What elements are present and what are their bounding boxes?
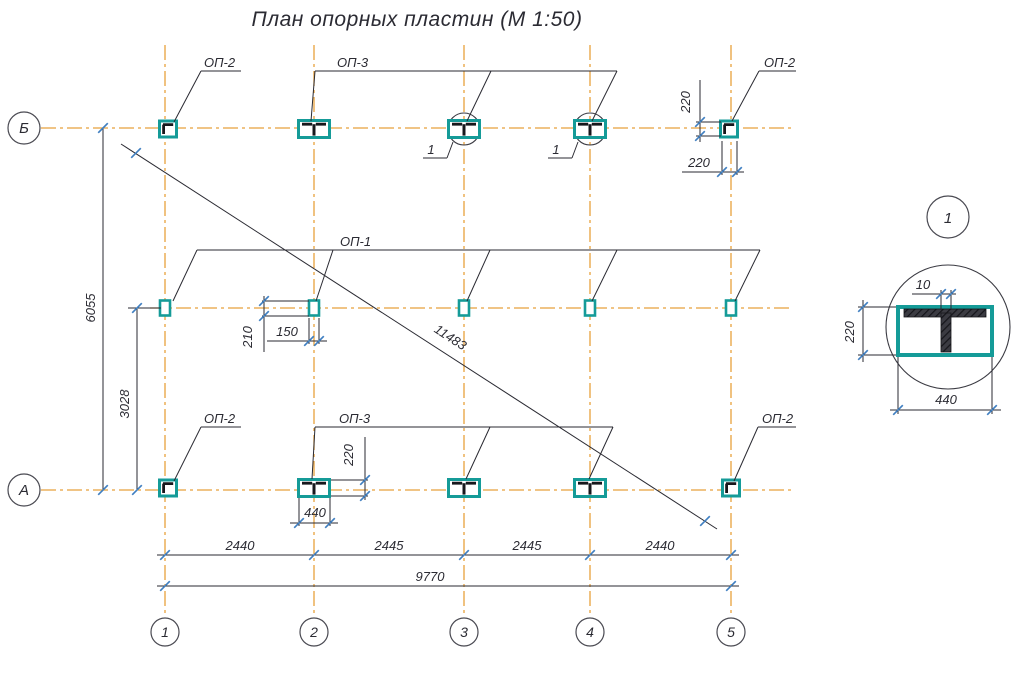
leader-line [467, 250, 490, 301]
diagonal-dimension: 11483 [121, 144, 717, 529]
plate-op3 [449, 480, 480, 497]
axis-label-col-3: 3 [460, 624, 468, 640]
plate-op3 [575, 480, 606, 497]
dim-span-1: 2440 [225, 538, 256, 553]
plate-op1 [309, 301, 319, 316]
detail-view: 1 10 220 440 [842, 196, 1010, 415]
leader-line [572, 142, 578, 158]
axis-label-col-2: 2 [309, 624, 318, 640]
label-op2-bottom-left: ОП-2 [204, 411, 236, 426]
axis-label-col-5: 5 [727, 624, 735, 640]
plate-op1 [585, 301, 595, 316]
plate-op2 [160, 121, 177, 137]
plate-op1 [459, 301, 469, 316]
leader-line [592, 250, 617, 301]
dimensions: 6055 3028 2440 2445 2445 2440 9770 220 [83, 80, 744, 591]
axis-label-col-1: 1 [161, 624, 169, 640]
leader-line [735, 250, 760, 301]
detail-web-section [941, 313, 951, 352]
dim-op1-width: 150 [276, 324, 298, 339]
plate-op1 [726, 301, 736, 316]
plate-op3 [449, 121, 480, 138]
plan-drawing-canvas: План опорных пластин (М 1:50) 11483 Б А … [0, 0, 1022, 676]
plate-op3 [299, 121, 330, 138]
plate-op1 [160, 301, 170, 316]
axis-label-col-4: 4 [586, 624, 594, 640]
leader-line [592, 71, 617, 121]
label-op2-top-right: ОП-2 [764, 55, 796, 70]
dim-op3-height: 220 [341, 443, 356, 466]
axis-bubbles: Б А 1 2 3 4 5 [8, 112, 745, 646]
dim-op3-width: 440 [304, 505, 326, 520]
plate-op3 [575, 121, 606, 138]
axis-label-row-a: А [18, 482, 29, 499]
axis-label-row-b: Б [19, 120, 29, 137]
leader-line [174, 71, 201, 122]
label-op1: ОП-1 [340, 234, 371, 249]
leader-line [316, 250, 333, 301]
dim-tick [700, 516, 710, 526]
leader-line [173, 250, 197, 301]
label-op3-bottom: ОП-3 [339, 411, 371, 426]
label-op2-bottom-right: ОП-2 [762, 411, 794, 426]
plate-op2 [723, 480, 740, 496]
leader-line [732, 71, 759, 121]
label-op3-top: ОП-3 [337, 55, 369, 70]
drawing-title: План опорных пластин (М 1:50) [252, 8, 583, 31]
detail-marker-label: 1 [427, 142, 434, 157]
dim-detail-width: 440 [935, 392, 957, 407]
dim-detail-height: 220 [842, 320, 857, 343]
dim-plate-height: 220 [678, 90, 693, 113]
drawing-page: План опорных пластин (М 1:50) 11483 Б А … [0, 0, 1022, 676]
label-op2-top-left: ОП-2 [204, 55, 236, 70]
dim-detail-web: 10 [916, 277, 931, 292]
dim-op1-height: 210 [240, 325, 255, 348]
dim-span-2: 2445 [374, 538, 405, 553]
dim-height-half: 3028 [117, 389, 132, 419]
leader-line [311, 71, 315, 121]
dim-total-width: 9770 [416, 569, 446, 584]
plate-op2 [160, 480, 177, 496]
leader-line [467, 71, 491, 121]
dim-plate-width: 220 [687, 155, 710, 170]
leader-line [466, 427, 490, 479]
plate-op2 [721, 121, 738, 137]
leader-line [174, 427, 201, 481]
dim-span-3: 2445 [512, 538, 543, 553]
dim-height-total: 6055 [83, 293, 98, 323]
detail-number-label: 1 [944, 210, 952, 227]
diagonal-dim-line [121, 144, 717, 529]
leader-line [734, 427, 758, 481]
plate-op3 [299, 480, 330, 497]
leader-line [589, 427, 613, 479]
dim-span-4: 2440 [645, 538, 676, 553]
detail-marker-label: 1 [552, 142, 559, 157]
axis-grid [41, 45, 792, 617]
leader-line [447, 142, 453, 158]
